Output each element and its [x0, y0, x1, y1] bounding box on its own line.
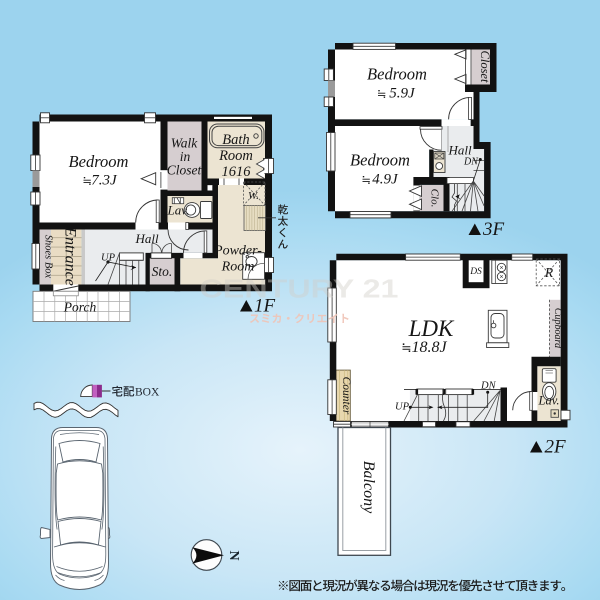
svg-text:Bedroom: Bedroom — [350, 151, 410, 170]
svg-text:R: R — [544, 265, 554, 280]
svg-text:1616: 1616 — [222, 164, 252, 180]
svg-text:Lav.: Lav. — [167, 203, 190, 218]
svg-text:5.9J: 5.9J — [389, 86, 416, 102]
svg-text:Closet: Closet — [167, 163, 203, 178]
svg-text:UP: UP — [101, 253, 116, 264]
svg-text:Room: Room — [218, 148, 253, 164]
svg-text:Shoes Box: Shoes Box — [43, 235, 54, 279]
svg-text:Bedroom: Bedroom — [69, 152, 129, 171]
svg-text:Room: Room — [221, 260, 255, 275]
svg-text:Clo.: Clo. — [429, 189, 441, 208]
svg-text:18.8J: 18.8J — [411, 339, 447, 356]
svg-text:DN: DN — [463, 157, 479, 168]
svg-text:UP: UP — [395, 402, 410, 413]
svg-text:DN: DN — [480, 380, 497, 391]
svg-text:Porch: Porch — [63, 300, 97, 315]
svg-text:Bedroom: Bedroom — [367, 65, 427, 84]
svg-text:Bath: Bath — [222, 132, 249, 148]
svg-text:Cupboard: Cupboard — [552, 308, 563, 349]
svg-text:Balcony: Balcony — [360, 461, 377, 514]
svg-text:Counter: Counter — [340, 377, 352, 415]
svg-text:2F: 2F — [545, 437, 567, 458]
svg-text:4.9J: 4.9J — [372, 172, 399, 188]
svg-text:Powder-: Powder- — [213, 244, 262, 259]
svg-text:CENTURY 21: CENTURY 21 — [200, 276, 399, 304]
svg-text:Sto.: Sto. — [152, 264, 173, 279]
svg-text:N: N — [226, 550, 241, 560]
svg-text:BOX: BOX — [135, 387, 160, 399]
svg-text:Entrance: Entrance — [62, 226, 79, 286]
svg-text:DS: DS — [469, 267, 482, 277]
svg-text:Hall: Hall — [134, 231, 159, 246]
svg-text:7.3J: 7.3J — [91, 173, 118, 189]
svg-text:LDK: LDK — [408, 316, 455, 341]
svg-text:Lav.: Lav. — [538, 394, 560, 408]
svg-text:W.: W. — [248, 190, 259, 202]
svg-text:Hall: Hall — [447, 143, 472, 158]
svg-text:Closet: Closet — [478, 51, 492, 83]
svg-text:3F: 3F — [482, 219, 505, 240]
